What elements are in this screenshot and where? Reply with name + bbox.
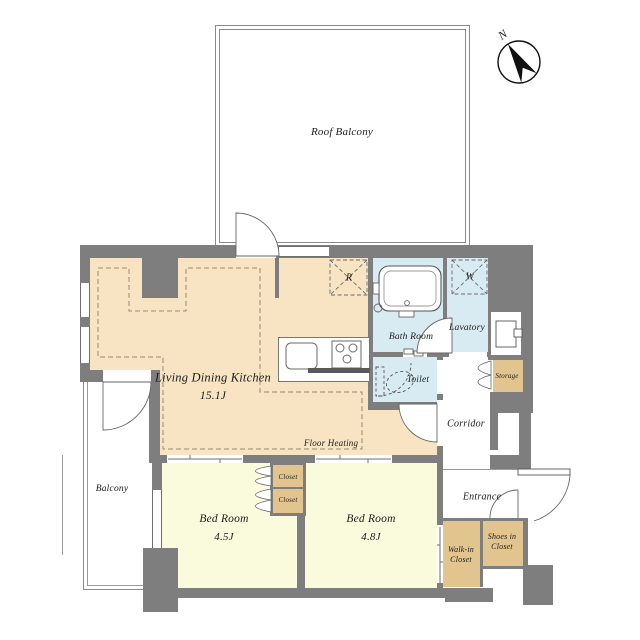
- wall-segment: [483, 566, 523, 569]
- compass-circle: [498, 41, 540, 83]
- room-bedroom-2: [305, 462, 437, 588]
- wall-segment: [488, 355, 523, 360]
- kitchen-counter: [278, 337, 370, 382]
- walk-in-closet-label: Walk-in Closet: [448, 545, 474, 565]
- roof-balcony-door-gap[interactable]: [236, 245, 276, 258]
- walk-in-closet-label-line2: Closet: [450, 555, 472, 564]
- bedroom1-window: [152, 490, 162, 548]
- toilet-door-gap[interactable]: [437, 360, 443, 394]
- entrance-step-line: [443, 469, 518, 470]
- ldk-label: Living Dining Kitchen: [155, 371, 271, 386]
- bedroom1-label: Bed Room: [199, 513, 248, 525]
- washing-machine-marker: W: [466, 272, 475, 283]
- ldk-door-gap[interactable]: [437, 400, 443, 446]
- bedroom2-sliding-door-gap[interactable]: [315, 455, 392, 463]
- front-door[interactable]: [518, 469, 570, 521]
- walk-in-closet-label-line1: Walk-in: [448, 545, 474, 554]
- bath-door-gap[interactable]: [403, 352, 427, 357]
- compass-needle: [508, 44, 537, 83]
- wall-segment: [443, 258, 447, 352]
- wall-segment: [445, 588, 493, 602]
- compass: [498, 41, 540, 83]
- wall-segment: [143, 548, 178, 612]
- ldk-window-upper: [80, 283, 90, 317]
- wall-segment: [488, 258, 491, 357]
- floor-plan: Roof Balcony Balcony Living Dining Kitch…: [0, 0, 640, 640]
- walk-in-closet-door-gap[interactable]: [437, 525, 443, 583]
- wall-segment: [523, 565, 553, 605]
- storage-door-gap[interactable]: [488, 360, 493, 392]
- closet-upper-label: Closet: [278, 473, 297, 481]
- meter-box: [496, 321, 522, 347]
- wall-segment: [368, 402, 443, 410]
- entry-step-gap: [493, 588, 523, 602]
- balcony-door-gap[interactable]: [103, 370, 151, 382]
- bedroom2-size-label: 4.8J: [361, 531, 380, 543]
- lavatory-label: Lavatory: [449, 323, 485, 333]
- ldk-window-lower: [80, 327, 90, 363]
- wall-segment: [480, 521, 483, 587]
- room-ldk: [368, 410, 437, 455]
- balcony-outer-rail-line: [62, 455, 63, 555]
- wall-segment: [275, 258, 279, 298]
- wall-segment: [149, 372, 160, 462]
- wall-segment: [443, 518, 523, 521]
- wall-segment: [523, 355, 533, 413]
- corridor-label: Corridor: [447, 419, 485, 430]
- wall-segment: [519, 413, 531, 470]
- wall-segment: [523, 518, 528, 565]
- floor-heating-label: Floor Heating: [304, 438, 358, 448]
- wall-segment: [490, 413, 498, 450]
- wall-segment: [368, 252, 373, 410]
- wall-segment: [490, 455, 519, 470]
- bedroom1-size-label: 4.5J: [214, 531, 233, 543]
- wall-segment: [142, 258, 178, 298]
- room-corridor: [443, 357, 490, 470]
- entrance-label: Entrance: [463, 492, 501, 503]
- bath-room-label: Bath Room: [389, 332, 433, 342]
- ldk-size-label: 15.1J: [200, 390, 226, 402]
- storage-label: Storage: [495, 372, 518, 380]
- bedroom1-sliding-door-gap[interactable]: [167, 455, 243, 463]
- toilet-label: Toilet: [407, 375, 430, 385]
- compass-north-label: N: [495, 26, 510, 43]
- closet-lower-label: Closet: [278, 496, 297, 504]
- balcony-inner-rail-line: [87, 380, 149, 586]
- shoes-in-closet-label-line2: Closet: [491, 542, 513, 551]
- wall-segment: [490, 245, 523, 312]
- shoes-in-closet-label-line1: Shoes in: [488, 532, 517, 541]
- wall-segment: [143, 588, 445, 598]
- refrigerator-marker: R: [346, 273, 352, 284]
- bedroom2-label: Bed Room: [346, 513, 395, 525]
- balcony-label: Balcony: [96, 484, 129, 494]
- lavatory-door-gap[interactable]: [449, 352, 487, 357]
- shoes-in-closet-label: Shoes in Closet: [488, 532, 517, 552]
- kitchen-window: [279, 246, 329, 257]
- roof-balcony-label: Roof Balcony: [311, 126, 373, 138]
